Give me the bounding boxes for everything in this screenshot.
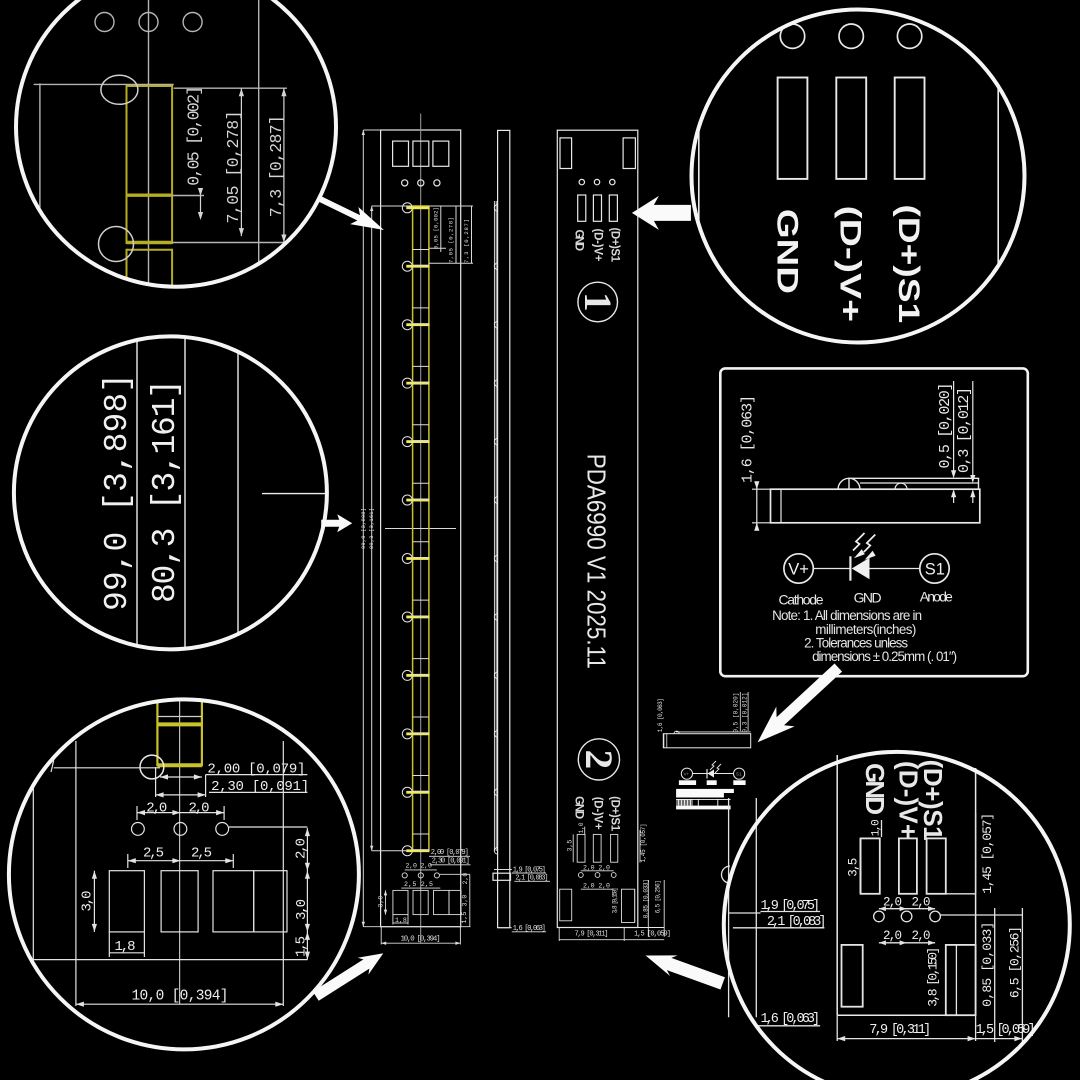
svg-text:2,0: 2,0 xyxy=(912,895,931,909)
svg-text:80,3 [3,161]: 80,3 [3,161] xyxy=(147,379,184,603)
svg-text:3,8 [0,150]: 3,8 [0,150] xyxy=(612,888,619,914)
svg-text:3,5: 3,5 xyxy=(846,858,860,877)
svg-text:7,3 [0,287]: 7,3 [0,287] xyxy=(267,115,286,217)
svg-text:(D+)S1: (D+)S1 xyxy=(608,796,620,832)
svg-text:GND: GND xyxy=(572,796,584,819)
svg-text:1,5 [0,059]: 1,5 [0,059] xyxy=(634,930,671,938)
svg-text:2,0: 2,0 xyxy=(912,929,931,943)
svg-text:1,45 [0,057]: 1,45 [0,057] xyxy=(980,813,995,894)
svg-text:2,0: 2,0 xyxy=(462,873,469,885)
svg-text:S1: S1 xyxy=(925,560,945,578)
svg-text:2,0 2,0: 2,0 2,0 xyxy=(406,863,433,870)
svg-text:3,8 [0,150]: 3,8 [0,150] xyxy=(926,947,941,1007)
svg-text:V+: V+ xyxy=(684,772,690,777)
svg-text:0,5 [0,020]: 0,5 [0,020] xyxy=(733,693,740,733)
svg-text:1,0: 1,0 xyxy=(578,822,585,833)
svg-text:Anode: Anode xyxy=(920,589,953,605)
svg-text:2,30 [0,091]: 2,30 [0,091] xyxy=(432,858,470,866)
svg-text:7,3 [0,287]: 7,3 [0,287] xyxy=(463,219,470,263)
svg-text:2,0: 2,0 xyxy=(146,801,167,817)
svg-text:6,5 [0,256]: 6,5 [0,256] xyxy=(654,880,661,913)
svg-text:S1: S1 xyxy=(736,772,742,777)
svg-text:3,5: 3,5 xyxy=(566,840,573,852)
svg-text:(D-)V+: (D-)V+ xyxy=(894,761,924,839)
svg-text:2: 2 xyxy=(577,750,620,770)
svg-text:1,5: 1,5 xyxy=(461,912,468,924)
svg-text:0,85 [0,033]: 0,85 [0,033] xyxy=(980,922,995,1007)
svg-text:0,5 [0,020]: 0,5 [0,020] xyxy=(937,383,954,469)
svg-text:(D+)S1: (D+)S1 xyxy=(608,228,620,263)
svg-text:99,0 [3,898]: 99,0 [3,898] xyxy=(361,508,367,549)
svg-text:10,0 [0,394]: 10,0 [0,394] xyxy=(401,936,441,944)
svg-text:0,3 [0,012]: 0,3 [0,012] xyxy=(742,693,749,733)
svg-text:0,05 [0,002]: 0,05 [0,002] xyxy=(433,207,440,249)
svg-text:1,45 [0,057]: 1,45 [0,057] xyxy=(640,824,647,863)
svg-text:1,6 [0,063]: 1,6 [0,063] xyxy=(761,1012,821,1027)
svg-text:Note: 1. All dimensions are in: Note: 1. All dimensions are in xyxy=(772,608,922,623)
svg-text:GND: GND xyxy=(860,763,890,815)
svg-text:(D-)V+: (D-)V+ xyxy=(834,206,866,323)
svg-text:2,5: 2,5 xyxy=(191,846,212,862)
svg-text:dimensions ± 0.25mm (. 01″): dimensions ± 0.25mm (. 01″) xyxy=(812,649,957,664)
svg-text:GND: GND xyxy=(771,209,804,294)
svg-text:V+: V+ xyxy=(788,560,809,578)
svg-text:3,0: 3,0 xyxy=(462,895,469,907)
svg-text:2,0 2,0: 2,0 2,0 xyxy=(583,882,610,889)
svg-text:10,0 [0,394]: 10,0 [0,394] xyxy=(132,989,229,1005)
svg-text:2,0: 2,0 xyxy=(189,801,210,817)
svg-text:1,6 [0,063]: 1,6 [0,063] xyxy=(657,698,664,732)
svg-text:99,0 [3,898]: 99,0 [3,898] xyxy=(99,373,136,611)
svg-text:2,00 [0,079]: 2,00 [0,079] xyxy=(431,849,469,857)
svg-text:2,5 2,5: 2,5 2,5 xyxy=(404,881,433,888)
svg-text:6,5 [0,256]: 6,5 [0,256] xyxy=(1008,926,1023,998)
svg-text:1,6 [0,063]: 1,6 [0,063] xyxy=(740,395,757,483)
svg-text:Cathode: Cathode xyxy=(779,592,824,608)
svg-text:7,05 [0,278]: 7,05 [0,278] xyxy=(224,111,243,224)
svg-text:7,9 [0,311]: 7,9 [0,311] xyxy=(869,1023,931,1038)
svg-text:0,3 [0,012]: 0,3 [0,012] xyxy=(956,387,973,473)
svg-text:(D-)V+: (D-)V+ xyxy=(592,229,604,262)
svg-text:(D+)S1: (D+)S1 xyxy=(892,204,925,323)
svg-text:GND: GND xyxy=(854,590,882,606)
svg-text:2,5: 2,5 xyxy=(143,846,164,862)
svg-text:80,3 [3,161]: 80,3 [3,161] xyxy=(369,508,375,549)
svg-text:3,0: 3,0 xyxy=(80,891,96,912)
svg-text:PDA6990 V1 2025.11: PDA6990 V1 2025.11 xyxy=(582,454,612,669)
svg-text:7,05 [0,278]: 7,05 [0,278] xyxy=(448,217,455,263)
svg-text:GND: GND xyxy=(572,230,584,252)
svg-text:3,0: 3,0 xyxy=(378,896,385,908)
svg-text:1,5 [0,059]: 1,5 [0,059] xyxy=(976,1023,1036,1038)
svg-text:1: 1 xyxy=(576,292,619,312)
svg-text:7,9 [0,311]: 7,9 [0,311] xyxy=(575,930,609,938)
svg-text:0,05 [0,002]: 0,05 [0,002] xyxy=(185,86,204,186)
svg-text:(D-)V+: (D-)V+ xyxy=(592,797,604,830)
